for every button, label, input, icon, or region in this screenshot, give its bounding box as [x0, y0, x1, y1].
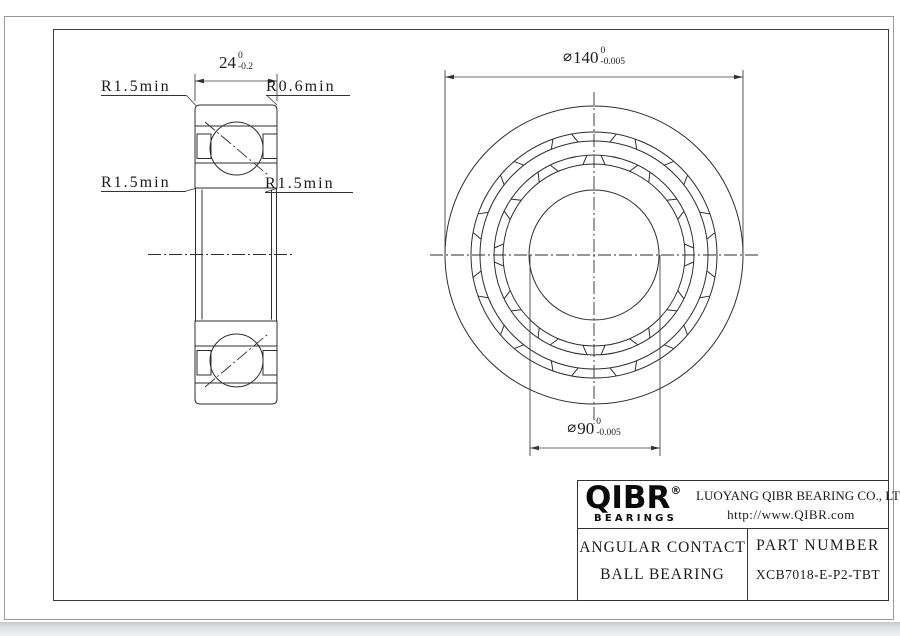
- outer-diameter-dimension: ⌀ 140 0 -0.005: [539, 49, 649, 68]
- logo-sub-text: BEARINGS: [594, 514, 681, 524]
- part-number-cell: PART NUMBER XCB7018-E-P2-TBT: [748, 529, 888, 599]
- bore-diameter-dimension: ⌀ 90 0 -0.005: [539, 420, 649, 439]
- radius-label-mid-left: R1.5min: [101, 174, 186, 192]
- ball-bottom: [210, 334, 263, 387]
- width-value: 24: [219, 54, 236, 71]
- front-view: [430, 70, 758, 456]
- width-tolerance: 0 -0.2: [238, 51, 253, 73]
- section-view: [148, 74, 293, 404]
- product-name-cell: ANGULAR CONTACT BALL BEARING: [578, 529, 747, 599]
- bore-dia-tolerance: 0 -0.005: [596, 417, 621, 439]
- part-number-value: XCB7018-E-P2-TBT: [748, 567, 888, 583]
- radius-label-top-left: R1.5min: [101, 78, 186, 96]
- diameter-symbol: ⌀: [563, 49, 572, 64]
- radius-label-top-right: R0.6min: [266, 78, 350, 96]
- diameter-symbol: ⌀: [567, 420, 576, 435]
- registered-trademark-icon: ®: [670, 484, 681, 497]
- ball-top: [210, 122, 263, 175]
- company-website: http://www.QIBR.com: [696, 507, 886, 523]
- company-logo: QIBR® BEARINGS: [585, 483, 681, 524]
- product-line1: ANGULAR CONTACT: [578, 539, 747, 557]
- drawing-page: 24 0 -0.2 ⌀ 140 0 -0.005 ⌀ 90 0 -0.005 R…: [0, 0, 900, 636]
- outer-dia-tolerance: 0 -0.005: [600, 46, 625, 68]
- product-line2: BALL BEARING: [578, 566, 747, 584]
- logo-brand-text: QIBR: [585, 480, 670, 516]
- company-name: LUOYANG QIBR BEARING CO., LTD: [696, 488, 886, 504]
- title-block: QIBR® BEARINGS LUOYANG QIBR BEARING CO.,…: [577, 480, 889, 601]
- width-dimension: 24 0 -0.2: [193, 54, 279, 73]
- radius-label-mid-right: R1.5min: [265, 175, 353, 193]
- part-number-label: PART NUMBER: [748, 537, 888, 555]
